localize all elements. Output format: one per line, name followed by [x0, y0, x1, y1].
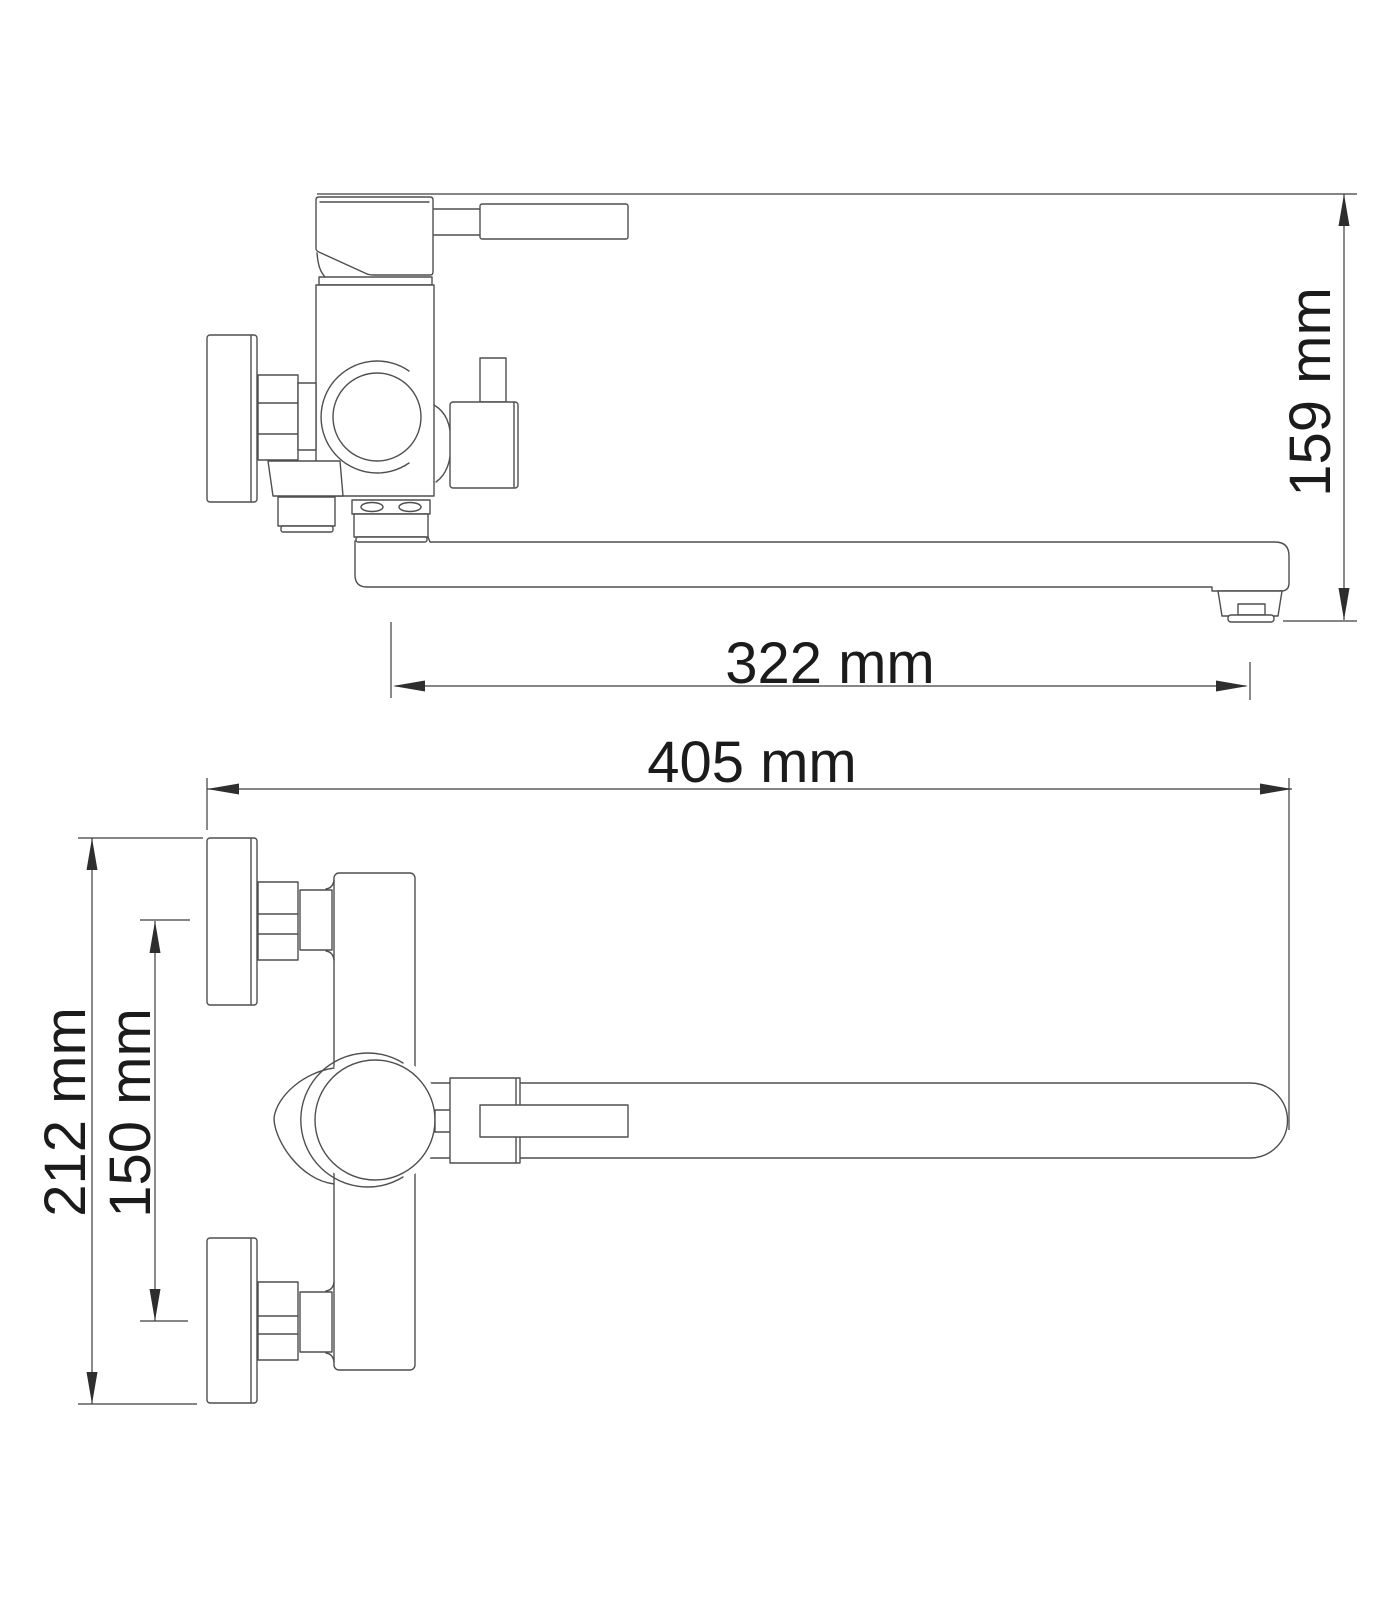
side-diverter-boss [434, 405, 451, 482]
plan-adapter-upper [300, 890, 332, 950]
side-lever-grip [480, 204, 628, 239]
technical-drawing-page: 159 mm 322 mm [0, 0, 1400, 1600]
side-collar [319, 277, 432, 285]
side-shower-outlet-nut [278, 497, 335, 526]
label-150mm: 150 mm [98, 1008, 163, 1218]
side-shower-outlet-boss [268, 461, 343, 496]
dimension-spout-reach: 322 mm [391, 622, 1250, 700]
side-spout-nut-collar [352, 500, 430, 514]
arrowhead-left [393, 681, 425, 692]
arrowhead-up [150, 921, 161, 953]
side-cartridge-circle [333, 373, 421, 461]
plan-wall-plate-upper [207, 838, 257, 1005]
side-spout-nut-band [356, 537, 427, 542]
label-159mm: 159 mm [1278, 287, 1343, 497]
side-housing-neck-curve [317, 253, 326, 278]
side-spout-nut-body [354, 514, 428, 537]
side-wall-plate [207, 335, 257, 502]
side-spout [355, 537, 1289, 591]
arrowhead-left [207, 784, 239, 795]
plan-hex-nut-upper [258, 882, 298, 960]
plan-inlet-fillet-top-b [326, 951, 334, 960]
side-diverter-block [450, 402, 518, 488]
side-hex-nut [258, 375, 298, 460]
arrowhead-down [1339, 588, 1350, 620]
arrowhead-up [1339, 194, 1350, 226]
side-aerator-disc [1228, 615, 1274, 622]
arrowhead-down [150, 1289, 161, 1321]
plan-wall-plate-lower [207, 1238, 257, 1403]
plan-cartridge-circle [315, 1060, 435, 1180]
side-view [207, 197, 1289, 622]
arrowhead-down [87, 1372, 98, 1404]
plan-lever-grip [480, 1105, 628, 1137]
side-lever-neck [434, 209, 480, 235]
side-shower-outlet-cap [281, 526, 333, 532]
side-adapter [298, 383, 316, 450]
label-405mm: 405 mm [647, 730, 857, 795]
side-diverter-stem [480, 358, 506, 402]
dimension-connection-centers: 150 mm [98, 920, 190, 1321]
plan-inlet-fillet-bottom-b [326, 1353, 334, 1362]
arrowhead-right [1260, 784, 1292, 795]
plan-view [207, 838, 1288, 1403]
plan-hex-nut-lower [258, 1282, 298, 1360]
label-212mm: 212 mm [33, 1007, 98, 1217]
arrowhead-right [1216, 681, 1248, 692]
label-322mm: 322 mm [725, 631, 935, 696]
plan-inlet-fillet-bottom-a [326, 1282, 334, 1291]
plan-adapter-lower [300, 1292, 332, 1352]
side-handle-housing [316, 197, 433, 275]
plan-inlet-fillet-top-a [326, 880, 334, 889]
arrowhead-up [87, 838, 98, 870]
faucet-dimension-drawing: 159 mm 322 mm [0, 0, 1400, 1600]
